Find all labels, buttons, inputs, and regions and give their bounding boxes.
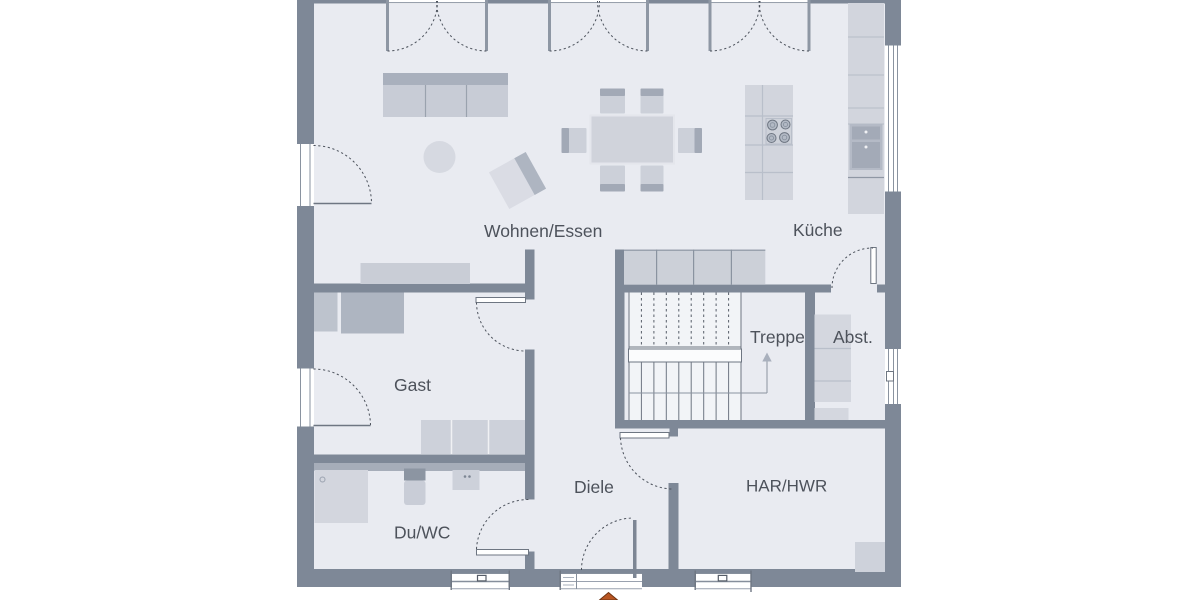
svg-text:Treppe: Treppe <box>750 327 805 347</box>
svg-text:Abst.: Abst. <box>833 327 873 347</box>
svg-text:Gast: Gast <box>394 375 431 395</box>
svg-text:HAR/HWR: HAR/HWR <box>746 477 827 496</box>
svg-text:Du/WC: Du/WC <box>394 523 450 543</box>
svg-text:Küche: Küche <box>793 220 843 240</box>
svg-text:Wohnen/Essen: Wohnen/Essen <box>484 221 602 241</box>
svg-text:Diele: Diele <box>574 477 614 497</box>
